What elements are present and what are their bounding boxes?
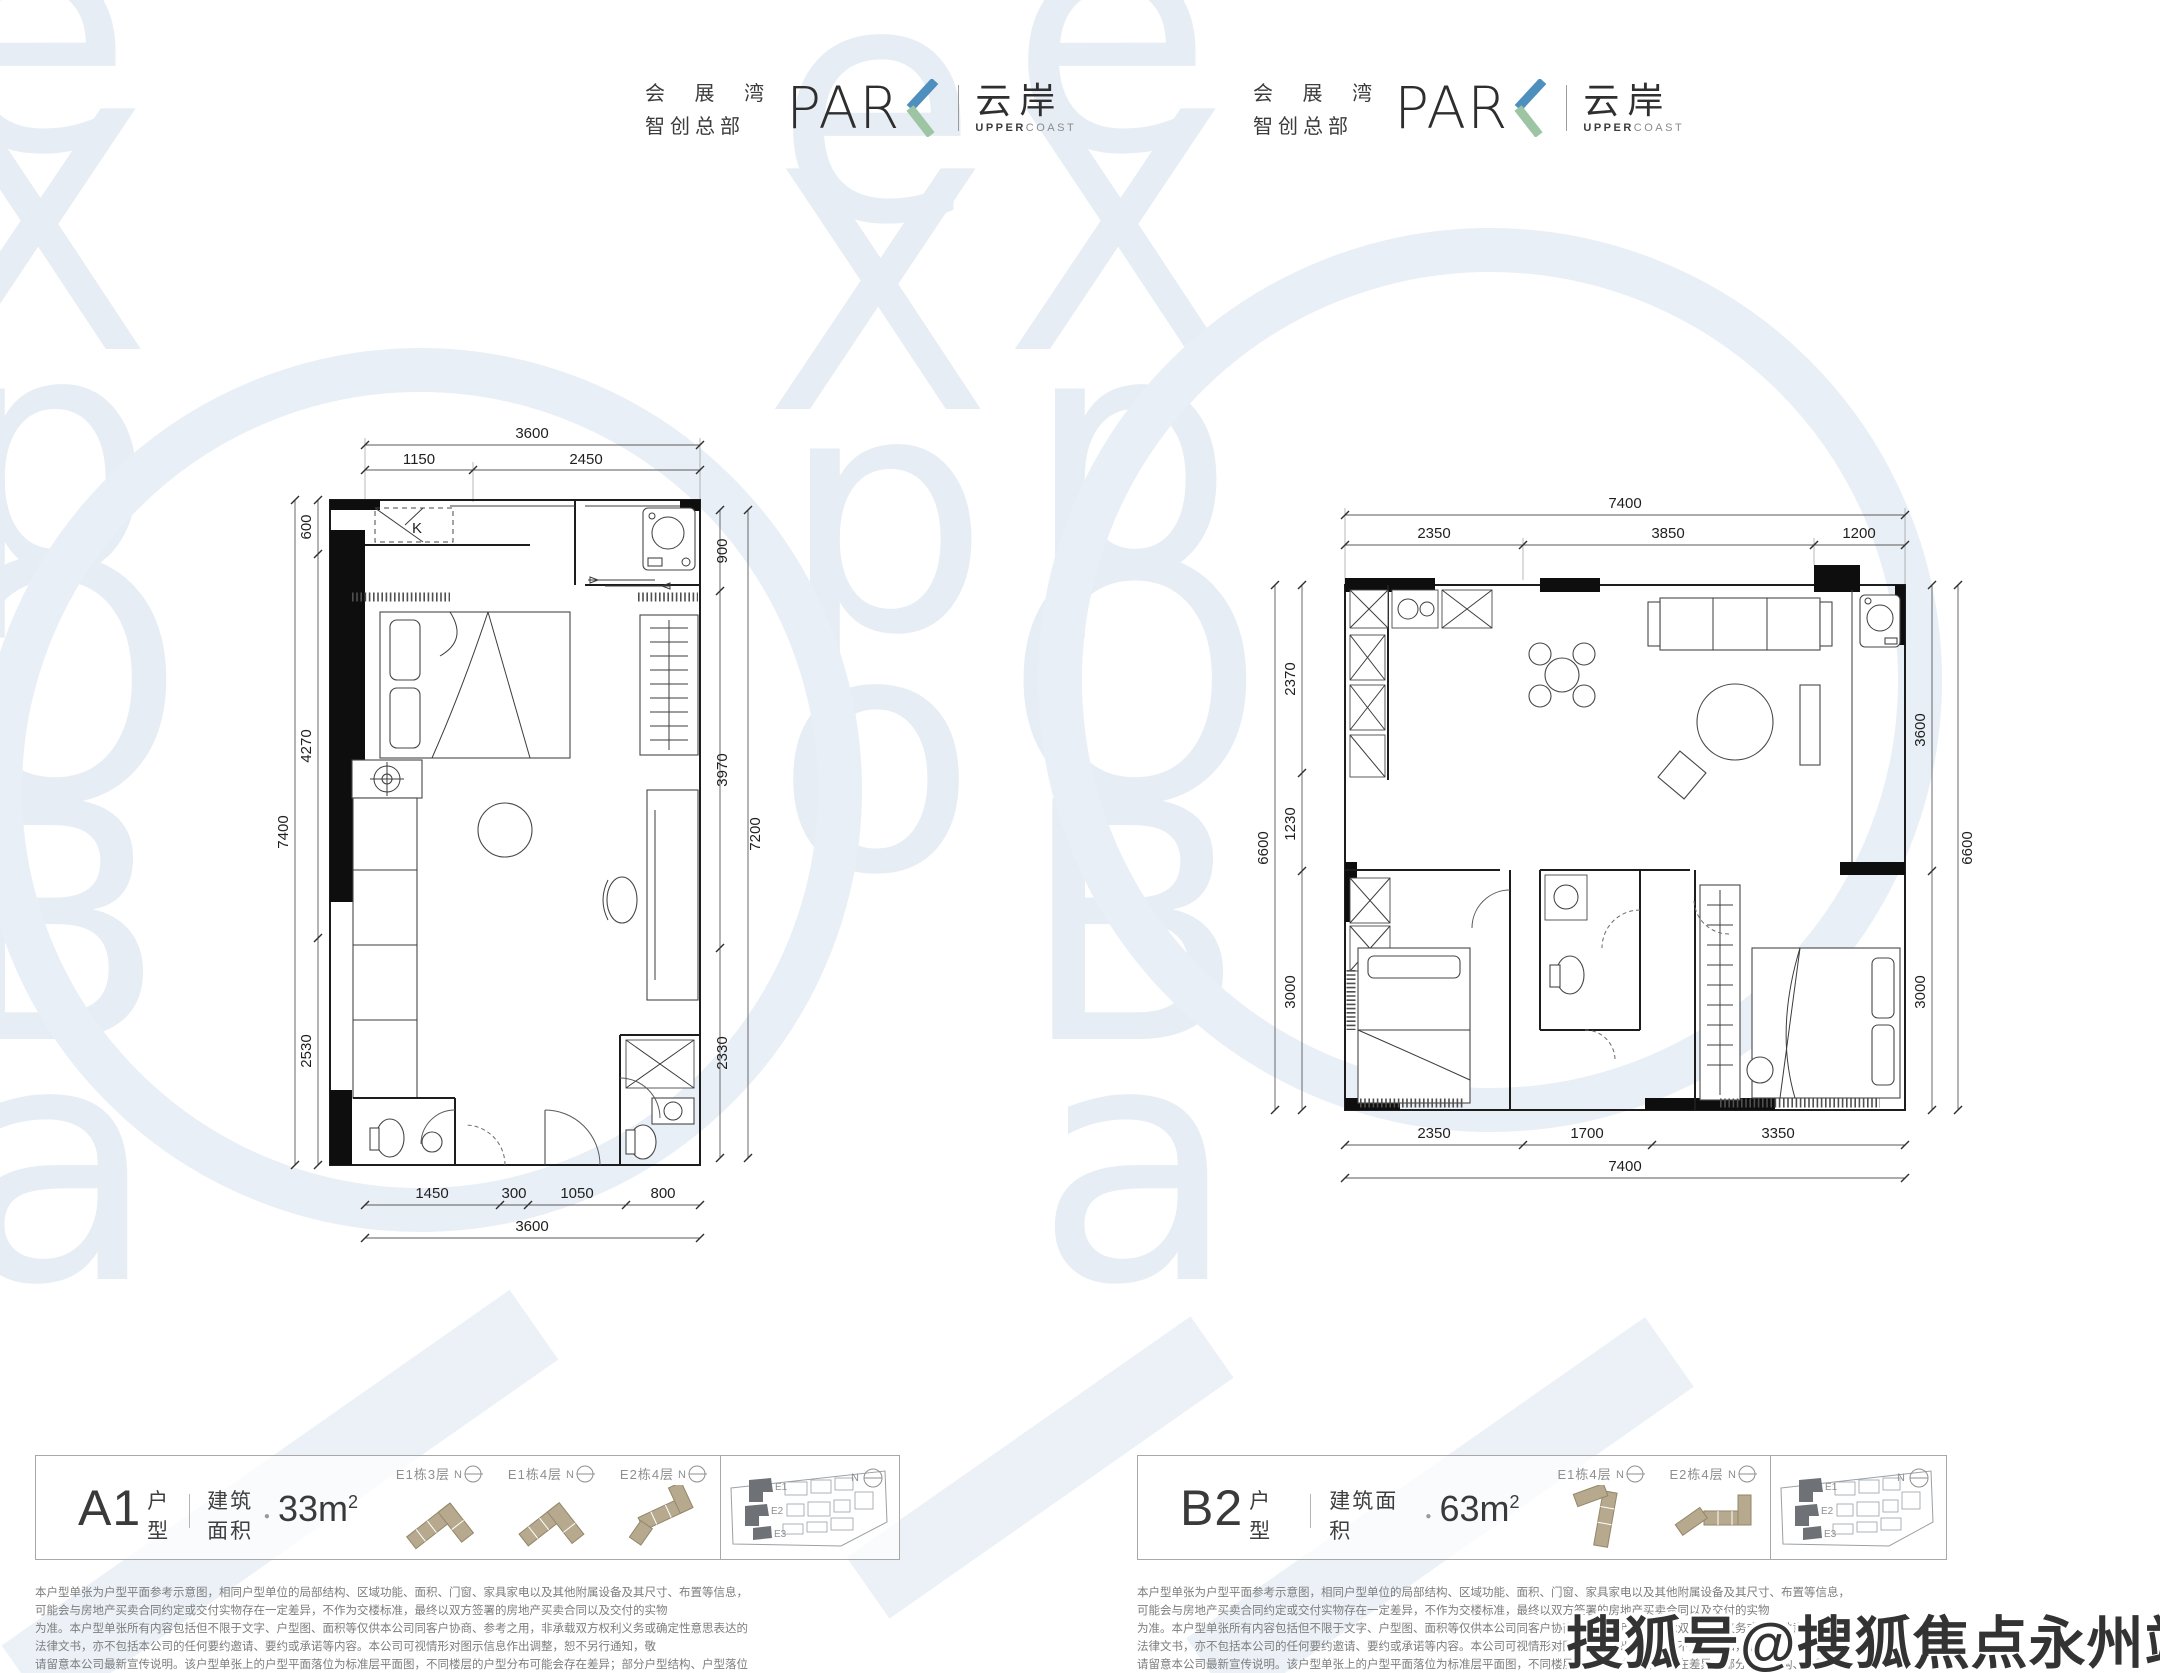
floor-diagram: E2栋4层 N (618, 1463, 710, 1553)
brand-name-cn: 云岸 (975, 82, 1063, 120)
kitchen-label: K (412, 520, 422, 537)
b2-dims-bottom: 2350 1700 3350 7400 (1341, 1125, 1909, 1182)
b2-dims-right: 3600 3000 6600 (1912, 581, 1976, 1114)
a1-dims-bottom: 1450 300 1050 800 3600 (361, 1185, 704, 1242)
a1-bed-symbol (380, 612, 570, 758)
dim-label: 3600 (1912, 713, 1929, 746)
b2-dims-left: 6600 2370 1230 3000 (1255, 581, 1306, 1114)
dim-label: 7400 (1608, 1158, 1641, 1175)
brand-cn-block: 会 展 湾 智创总部 (1253, 77, 1384, 139)
area-sup: 2 (1510, 1492, 1520, 1512)
floor-diagram: E2栋4层 N (1668, 1463, 1760, 1553)
dim-label: 1050 (560, 1185, 593, 1202)
dot-icon: ● (264, 1511, 270, 1522)
unit-code: B2 (1180, 1479, 1243, 1537)
brand-cn-block: 会 展 湾 智创总部 (645, 77, 776, 139)
dim-label: 900 (714, 538, 731, 563)
dim-label: 6600 (1959, 831, 1976, 864)
floorplan-a1: 3600 1150 2450 7400 600 4270 2530 900 39… (200, 290, 820, 1300)
unit-type-block: A1 户型 建筑面积 ● 33m2 (36, 1456, 358, 1559)
a1-dims-top: 3600 1150 2450 (361, 425, 704, 502)
disclaimer-line: 为准。本户型单张所有内容包括但不限于文字、户型图、面积等仅供本公司同客户协商、参… (35, 1620, 751, 1656)
dim-label: 800 (650, 1185, 675, 1202)
dim-label: 1450 (415, 1185, 448, 1202)
info-bar-a1: A1 户型 建筑面积 ● 33m2 E1栋3层 N (35, 1455, 900, 1560)
b2-dining-symbol (1529, 643, 1595, 707)
north-compass-icon: N (566, 1463, 596, 1485)
a1-entry-door (465, 1110, 600, 1165)
north-label: N (851, 1472, 859, 1484)
unit-type-block: B2 户型 建筑面积 ● 63m2 (1138, 1456, 1520, 1559)
floor-diagram: E1栋4层 N (1556, 1463, 1648, 1553)
logo-divider (958, 85, 959, 131)
dim-label: 1700 (1570, 1125, 1603, 1142)
brand-logo-left: 会 展 湾 智创总部 PAR 云岸 UPPERCOAST (645, 70, 1076, 146)
dim-label: 3850 (1651, 525, 1684, 542)
north-compass-icon: N (1728, 1463, 1758, 1485)
info-bar-b2: B2 户型 建筑面积 ● 63m2 E1栋4层 N (1137, 1455, 1947, 1560)
a1-dims-right: 900 3970 2330 7200 (714, 506, 764, 1162)
area-value: 63m2 (1439, 1488, 1519, 1530)
brand-cn-line2: 智创总部 (645, 110, 776, 139)
building-footprint-icon (1556, 1485, 1648, 1553)
brand-park-text: PAR (1394, 79, 1508, 137)
b2-kitchen-symbols (1350, 590, 1492, 777)
b2-washer-symbol (1860, 595, 1900, 647)
floor-diagram-label: E2栋4层 (1669, 1464, 1723, 1483)
a1-bathroom-right (620, 1035, 700, 1165)
a1-kitchen-symbol: K (375, 508, 453, 542)
floor-diagram-label: E1栋3层 (396, 1464, 450, 1483)
site-label: E3 (774, 1529, 787, 1540)
brand-name-en: UPPERCOAST (1583, 122, 1684, 134)
a1-washer-symbol (643, 508, 695, 570)
building-footprint-icon (618, 1485, 710, 1553)
a1-nightstand-symbol (352, 760, 422, 798)
area-number: 33m (278, 1488, 348, 1529)
site-plan-box: E1 E2 E3 N (720, 1456, 899, 1559)
brand-cn-line2: 智创总部 (1253, 110, 1384, 139)
floorplan-b2: 7400 2350 3850 1200 6600 2370 1230 3000 … (1240, 470, 1990, 1190)
site-label: E2 (771, 1506, 784, 1517)
brand-park-text: PAR (786, 79, 900, 137)
north-label: N (1897, 1472, 1905, 1484)
floor-diagram: E1栋4层 N (506, 1463, 598, 1553)
brand-name-cn: 云岸 (1583, 82, 1671, 120)
brand-en-bold: UPPER (1583, 122, 1633, 134)
a1-dims-left: 7400 600 4270 2530 (275, 496, 322, 1169)
dim-label: 1200 (1842, 525, 1875, 542)
dim-label: 3000 (1912, 975, 1929, 1008)
brand-name-block: 云岸 UPPERCOAST (1583, 82, 1684, 134)
dim-label: 3600 (515, 1218, 548, 1235)
dim-label: 3000 (1282, 975, 1299, 1008)
brand-cn-line1: 会 展 湾 (645, 77, 776, 106)
logo-divider (1566, 85, 1567, 131)
svg-text:N: N (1616, 1469, 1624, 1481)
unit-code: A1 (78, 1479, 141, 1537)
a1-cabinet-strip (353, 798, 417, 1098)
area-label: 建筑面积 (1329, 1485, 1415, 1545)
brand-logo-right: 会 展 湾 智创总部 PAR 云岸 UPPERCOAST (1253, 70, 1684, 146)
dim-label: 2530 (298, 1034, 315, 1067)
floor-diagram-label: E2栋4层 (620, 1464, 674, 1483)
dim-label: 7200 (747, 817, 764, 850)
dim-label: 2370 (1282, 662, 1299, 695)
dim-label: 2330 (714, 1036, 731, 1069)
svg-text:N: N (566, 1469, 574, 1481)
site-label: E1 (1825, 1482, 1838, 1493)
dim-label: 6600 (1255, 831, 1272, 864)
north-compass-icon: N (678, 1463, 708, 1485)
dim-label: 7400 (275, 815, 292, 848)
disclaimer-left: 本户型单张为户型平面参考示意图，相同户型单位的局部结构、区域功能、面积、门窗、家… (35, 1584, 751, 1673)
brand-park-wordmark: PAR (786, 79, 940, 137)
a1-bathroom-left (353, 1098, 455, 1165)
area-label: 建筑面积 (207, 1485, 254, 1545)
svg-text:N: N (454, 1469, 462, 1481)
dot-icon: ● (1425, 1511, 1431, 1522)
brand-k-icon (898, 79, 940, 137)
floor-diagram-label: E1栋4层 (508, 1464, 562, 1483)
brand-en-light: COAST (1634, 122, 1684, 134)
dim-label: 300 (501, 1185, 526, 1202)
brand-cn-line1: 会 展 湾 (1253, 77, 1384, 106)
floor-diagram: E1栋3层 N (394, 1463, 486, 1553)
divider (189, 1494, 190, 1528)
dim-label: 1230 (1282, 807, 1299, 840)
floor-diagrams: E1栋4层 N E2栋4层 N (1546, 1456, 1770, 1559)
b2-bedroom2-symbols (1350, 878, 1510, 1103)
divider (1310, 1494, 1311, 1528)
site-plan-map: E1 E2 E3 N (721, 1464, 899, 1552)
unit-suffix: 户型 (1249, 1485, 1292, 1545)
dim-label: 3600 (515, 425, 548, 442)
dim-label: 2350 (1417, 1125, 1450, 1142)
b2-master-bedroom-symbols (1694, 885, 1900, 1100)
area-sup: 2 (348, 1492, 358, 1512)
area-number: 63m (1439, 1488, 1509, 1529)
a1-wardrobe-symbol (640, 615, 698, 755)
disclaimer-line: 请留意本公司最新宣传说明。该户型单张上的户型平面落位为标准层平面图，不同楼层的户… (35, 1656, 751, 1673)
brand-name-en: UPPERCOAST (975, 122, 1076, 134)
north-compass-icon: N (454, 1463, 484, 1485)
floor-diagram-label: E1栋4层 (1557, 1464, 1611, 1483)
svg-text:N: N (678, 1469, 686, 1481)
dim-label: 2350 (1417, 525, 1450, 542)
floor-diagrams: E1栋3层 N E1栋4层 N (384, 1456, 720, 1559)
building-footprint-icon (394, 1485, 486, 1553)
brand-name-block: 云岸 UPPERCOAST (975, 82, 1076, 134)
disclaimer-line: 本户型单张为户型平面参考示意图，相同户型单位的局部结构、区域功能、面积、门窗、家… (35, 1584, 751, 1620)
brand-en-light: COAST (1026, 122, 1076, 134)
b2-bathroom-symbols (1545, 875, 1640, 1060)
unit-suffix: 户型 (147, 1485, 170, 1545)
a1-desk-symbol (603, 790, 698, 1000)
area-value: 33m2 (278, 1488, 358, 1530)
site-label: E2 (1821, 1506, 1834, 1517)
flyer-canvas: e X p O B a e X p o e X p O B a 会 展 湾 智创… (0, 0, 2160, 1673)
site-label: E1 (775, 1482, 788, 1493)
building-footprint-icon (506, 1485, 598, 1553)
brand-en-bold: UPPER (975, 122, 1025, 134)
building-footprint-icon (1668, 1485, 1760, 1553)
sohu-watermark: 搜狐号@搜狐焦点永州站 (1566, 1598, 2160, 1673)
a1-sliding-door (588, 577, 670, 589)
b2-livingroom-symbols (1648, 598, 1832, 799)
brand-k-icon (1506, 79, 1548, 137)
dim-label: 3970 (714, 753, 731, 786)
dim-label: 1150 (403, 451, 435, 468)
site-plan-map: E1 E2 E3 N (1773, 1464, 1943, 1552)
brand-park-wordmark: PAR (1394, 79, 1548, 137)
dim-label: 600 (298, 514, 315, 539)
dim-label: 3350 (1761, 1125, 1794, 1142)
dim-label: 4270 (298, 729, 315, 762)
dim-label: 2450 (569, 451, 602, 468)
site-label: E3 (1824, 1529, 1837, 1540)
dim-label: 7400 (1608, 495, 1641, 512)
svg-text:N: N (1728, 1469, 1736, 1481)
north-compass-icon: N (1616, 1463, 1646, 1485)
a1-table-symbol (478, 803, 532, 857)
site-plan-box: E1 E2 E3 N (1770, 1456, 1946, 1559)
